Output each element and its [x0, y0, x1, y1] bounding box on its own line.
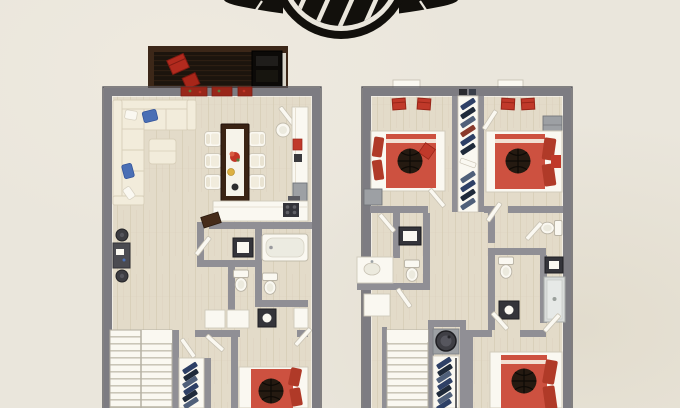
- cabinet: [227, 310, 249, 328]
- dining-chair: [205, 132, 222, 147]
- dining-chair: [249, 154, 266, 169]
- dining-chair: [205, 175, 222, 190]
- toilet: [499, 257, 514, 278]
- toilet: [263, 273, 278, 294]
- washing-machine: [436, 331, 456, 351]
- grill: [252, 51, 282, 87]
- bathroom-3: [544, 257, 565, 322]
- dark-mirror-cabinet: [399, 227, 421, 245]
- counter-items-red: [293, 139, 302, 150]
- table-plate: [232, 184, 239, 191]
- laundry-closet: [433, 329, 459, 408]
- window-seat: [521, 98, 535, 110]
- deck: [151, 49, 286, 89]
- hall-cabinet: [364, 294, 390, 316]
- dark-vanity: [233, 238, 253, 257]
- cabinet: [294, 308, 308, 328]
- nightstand: [364, 189, 382, 205]
- bathtub: [262, 234, 308, 261]
- stool: [116, 270, 128, 282]
- bedroom-floor-plan: [357, 80, 572, 408]
- shower: [544, 277, 565, 322]
- basketball-bed-2: [486, 131, 562, 192]
- floor-plan-render: [0, 0, 680, 408]
- logo-right-wing: [399, 0, 458, 14]
- logo-left-wing: [224, 0, 283, 14]
- dark-vanity: [258, 309, 276, 327]
- staircase: [110, 330, 172, 408]
- window-seat: [392, 98, 406, 110]
- cabinet: [205, 310, 225, 328]
- dark-vanity: [545, 257, 563, 273]
- main-floor-plan: [103, 49, 321, 408]
- dark-vanity: [499, 301, 519, 319]
- basketball-bed: [239, 367, 308, 408]
- sofa-pillow-white: [124, 110, 137, 121]
- stool: [116, 229, 128, 241]
- stove: [283, 203, 299, 217]
- basketball-bed-3: [490, 352, 562, 408]
- window-seat: [417, 98, 431, 110]
- toilet: [405, 260, 420, 281]
- dining-chair: [249, 175, 266, 190]
- staircase: [387, 330, 428, 408]
- toilet: [234, 270, 249, 291]
- winged-basketball-logo: [224, 0, 458, 47]
- toilet: [541, 221, 562, 236]
- bed-basketball-emblem: [398, 149, 423, 174]
- window-flower-boxes: [181, 87, 252, 96]
- wall-desk: [113, 243, 130, 268]
- basketball-bed-1: [371, 131, 445, 191]
- bed-basketball-emblem: [259, 379, 284, 404]
- bed-basketball-emblem: [512, 369, 537, 394]
- bed-basketball-emblem: [506, 149, 531, 174]
- deck-rail: [282, 53, 286, 86]
- window-seat: [501, 98, 515, 110]
- dining-chair: [205, 154, 222, 169]
- walk-in-closet: [458, 89, 478, 212]
- floor-plan-sheet: [0, 0, 680, 408]
- sink-vanity: [357, 257, 393, 283]
- dining-chair: [249, 132, 266, 147]
- table-bowl: [228, 169, 235, 176]
- ottoman: [149, 139, 176, 164]
